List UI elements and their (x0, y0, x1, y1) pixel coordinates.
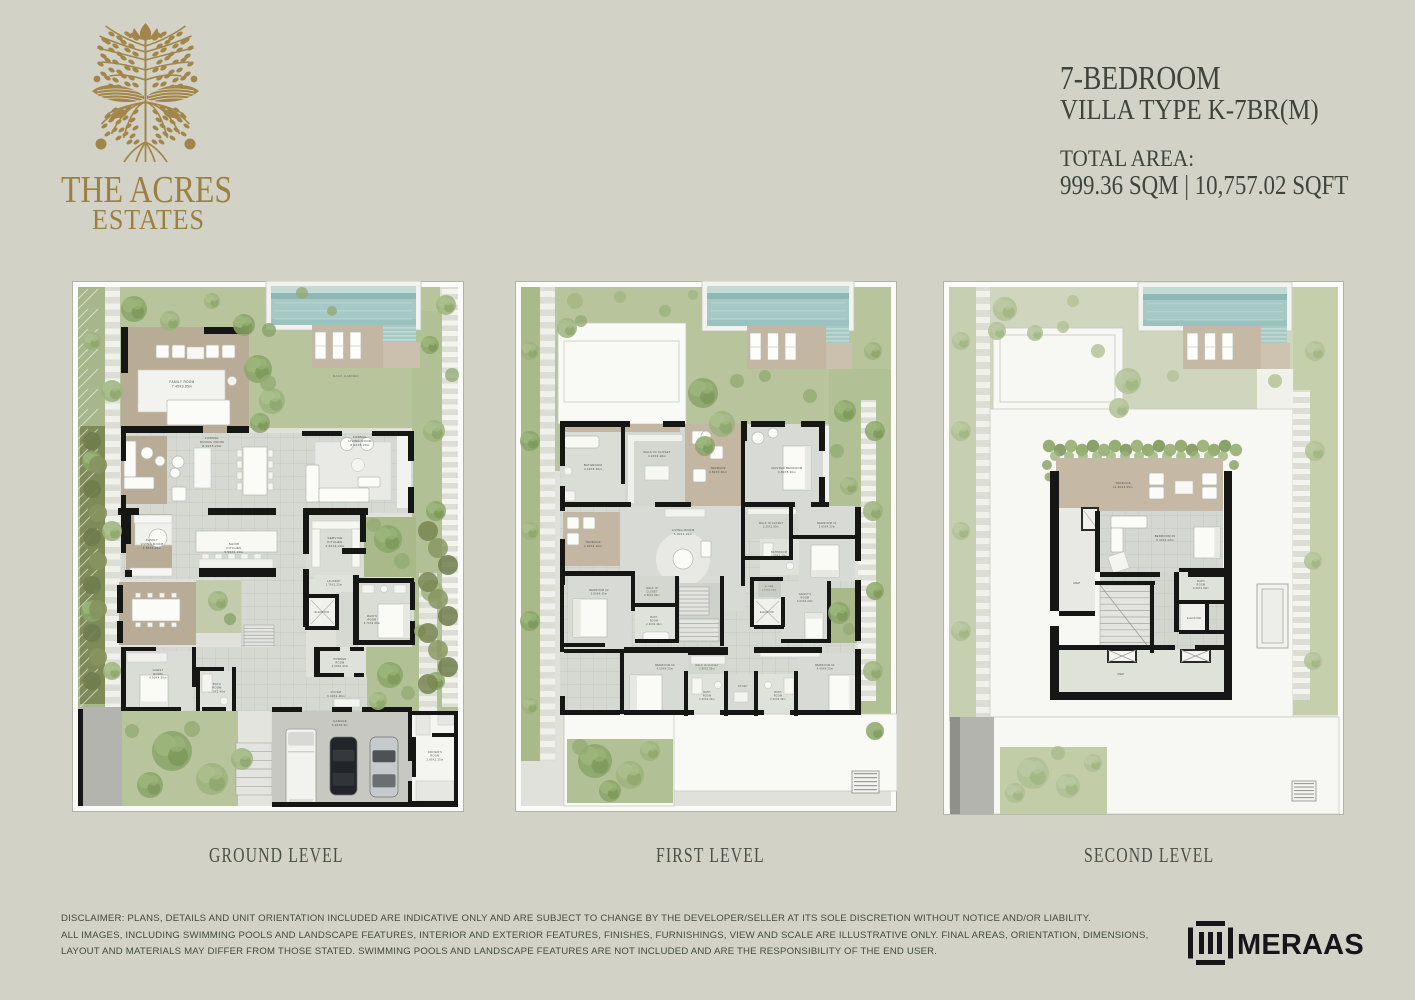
svg-text:4.00X4.20m: 4.00X4.20m (657, 668, 673, 671)
svg-text:2.90X4.20m: 2.90X4.20m (584, 544, 602, 548)
svg-text:2.80X1.50m: 2.80X1.50m (699, 668, 714, 670)
svg-text:ROOM: ROOM (336, 662, 345, 665)
svg-text:4.80X4.20m: 4.80X4.20m (149, 676, 167, 680)
svg-text:MEP: MEP (1118, 672, 1125, 676)
svg-text:ROOM: ROOM (153, 672, 163, 676)
svg-text:CLOSET: CLOSET (647, 591, 658, 593)
svg-text:ELEVATOR: ELEVATOR (1187, 617, 1201, 620)
svg-text:STUDY: STUDY (738, 685, 748, 688)
svg-text:2.85X2.25m: 2.85X2.25m (427, 757, 444, 761)
svg-text:BEDROOM 04: BEDROOM 04 (815, 664, 835, 667)
svg-text:BATH: BATH (650, 616, 657, 619)
svg-text:4.50X4.25m: 4.50X4.25m (143, 546, 162, 550)
svg-text:GUEST: GUEST (153, 668, 164, 672)
svg-text:2.20X2.30m: 2.20X2.30m (770, 699, 785, 701)
svg-text:BATH: BATH (774, 691, 781, 694)
svg-text:4.80X5.20m: 4.80X5.20m (778, 470, 796, 474)
svg-text:BEDROOM 02: BEDROOM 02 (589, 589, 609, 592)
svg-text:6.00X4.20m: 6.00X4.20m (674, 532, 693, 536)
svg-text:BATH: BATH (703, 691, 710, 694)
svg-text:BACK GARDEN: BACK GARDEN (333, 374, 359, 378)
svg-text:11.50X3.55m: 11.50X3.55m (1113, 485, 1133, 489)
svg-text:WALK IN: WALK IN (646, 587, 658, 590)
svg-text:6.00X2.40m: 6.00X2.40m (327, 694, 345, 698)
svg-text:WALK IN CLOSET: WALK IN CLOSET (695, 664, 719, 667)
svg-text:ROOM: ROOM (774, 695, 782, 697)
svg-text:8.30X4.00m: 8.30X4.00m (1156, 538, 1174, 542)
svg-text:BEDROOM 05: BEDROOM 05 (1155, 534, 1176, 538)
svg-text:ELEVATOR: ELEVATOR (760, 611, 774, 614)
svg-text:STORE: STORE (765, 586, 774, 588)
svg-text:LAUNDRY: LAUNDRY (327, 580, 341, 583)
svg-text:ROOM: ROOM (650, 620, 658, 622)
svg-text:2.50X1.80m: 2.50X1.80m (644, 595, 659, 597)
svg-text:FOYER: FOYER (331, 690, 342, 694)
svg-text:1.70X1.25m: 1.70X1.25m (762, 589, 777, 591)
svg-text:ROOM: ROOM (368, 619, 377, 622)
svg-text:MERAAS: MERAAS (1237, 929, 1364, 961)
svg-text:ELEVATOR: ELEVATOR (315, 611, 330, 614)
svg-text:8.20X5.20m: 8.20X5.20m (350, 443, 369, 447)
svg-text:MEP: MEP (1074, 581, 1081, 585)
svg-text:3.60X4.20m: 3.60X4.20m (325, 544, 344, 548)
svg-text:DRIVER'S: DRIVER'S (428, 750, 442, 754)
svg-text:3.80X4.30m: 3.80X4.30m (591, 593, 607, 596)
svg-text:MAID'S: MAID'S (367, 615, 377, 618)
svg-text:3.40X5.20m: 3.40X5.20m (584, 467, 602, 471)
svg-text:7.45X3.85m: 7.45X3.85m (172, 384, 192, 388)
svg-text:POWDER: POWDER (333, 658, 346, 661)
svg-text:2.30X2.40m: 2.30X2.40m (646, 624, 661, 626)
svg-text:3.80X3.40m: 3.80X3.40m (709, 470, 727, 474)
svg-text:4.40X4.20m: 4.40X4.20m (817, 668, 833, 671)
svg-text:5.50X4.20m: 5.50X4.20m (224, 550, 243, 554)
svg-text:2.20X1.90m: 2.20X1.90m (763, 526, 779, 529)
svg-text:8.30X5.20m: 8.30X5.20m (202, 444, 221, 448)
svg-text:2.08X1.60m: 2.08X1.60m (332, 665, 348, 668)
svg-text:1.76X1.25m: 1.76X1.25m (326, 584, 342, 587)
svg-text:2.30X2.30m: 2.30X2.30m (699, 699, 714, 701)
svg-text:BATH: BATH (213, 682, 221, 686)
svg-text:3.00X2.20m: 3.00X2.20m (797, 600, 813, 603)
svg-text:ROOM: ROOM (430, 754, 439, 758)
svg-text:BEDROOM 03: BEDROOM 03 (655, 664, 675, 667)
svg-text:3.80X4.20m: 3.80X4.20m (819, 526, 835, 529)
svg-text:ROOM: ROOM (703, 695, 711, 697)
svg-text:3.70X2.60m: 3.70X2.60m (364, 622, 380, 625)
svg-text:4.20X3.20m: 4.20X3.20m (648, 454, 666, 458)
svg-text:ROOM: ROOM (212, 686, 221, 690)
svg-text:2.60X1.80m: 2.60X1.80m (1193, 587, 1209, 590)
svg-text:BEDROOM 01: BEDROOM 01 (817, 522, 837, 525)
svg-text:6.20X6.5m: 6.20X6.5m (332, 723, 349, 727)
